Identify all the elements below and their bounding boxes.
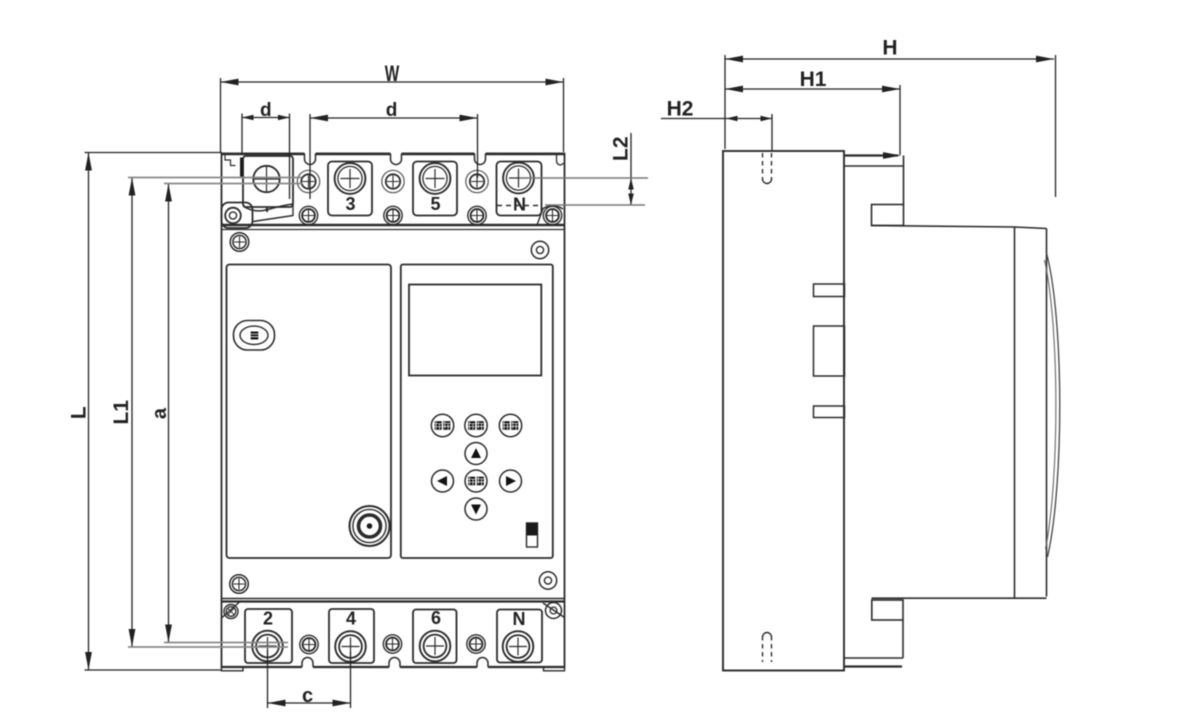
svg-text:H1: H1 [800,68,827,91]
svg-text:H2: H2 [667,98,694,121]
svg-text:d: d [386,100,398,121]
svg-text:L1: L1 [110,400,133,425]
svg-text:L: L [68,406,91,419]
svg-text:d: d [260,100,272,121]
svg-text:3: 3 [345,194,355,214]
svg-text:2: 2 [263,609,273,629]
svg-text:6: 6 [431,608,441,628]
svg-text:4: 4 [346,609,356,629]
svg-text:L2: L2 [610,136,633,161]
svg-text:H: H [882,37,897,60]
svg-text:N: N [513,609,526,629]
svg-text:N: N [513,195,526,215]
svg-text:a: a [149,407,171,419]
svg-text:W: W [385,61,400,86]
svg-text:5: 5 [430,194,440,214]
svg-text:c: c [302,685,313,707]
